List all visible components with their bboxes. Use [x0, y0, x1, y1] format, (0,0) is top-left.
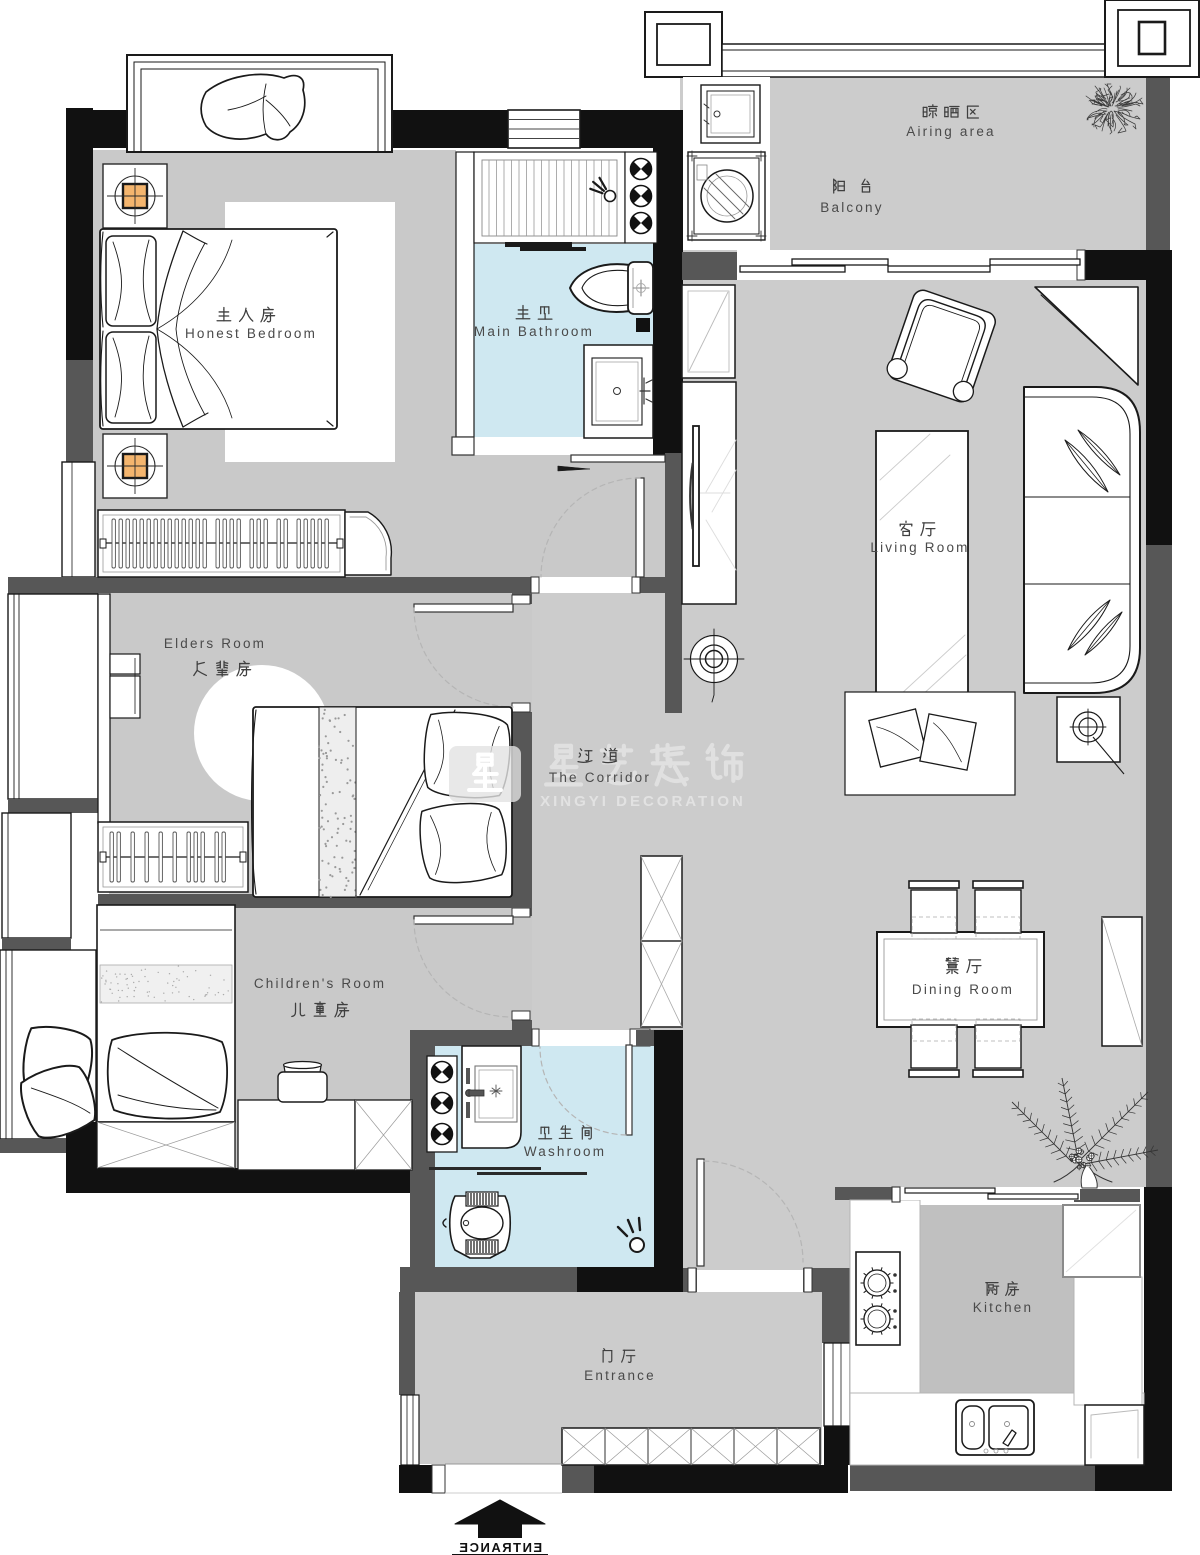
- svg-text:Living Room: Living Room: [870, 540, 969, 555]
- svg-text:Dining Room: Dining Room: [912, 982, 1014, 997]
- svg-text:Main Bathroom: Main Bathroom: [474, 324, 594, 339]
- svg-text:XINGYI DECORATION: XINGYI DECORATION: [540, 793, 746, 810]
- svg-text:Washroom: Washroom: [524, 1144, 606, 1159]
- svg-text:Honest Bedroom: Honest Bedroom: [185, 326, 317, 341]
- svg-text:Kitchen: Kitchen: [973, 1300, 1033, 1315]
- svg-text:ENTRANCE: ENTRANCE: [458, 1540, 542, 1555]
- svg-text:Airing area: Airing area: [906, 124, 996, 139]
- svg-text:Balcony: Balcony: [820, 200, 883, 215]
- svg-text:The Corridor: The Corridor: [549, 770, 651, 785]
- svg-text:Entrance: Entrance: [584, 1368, 656, 1383]
- svg-text:Elders Room: Elders Room: [164, 636, 266, 651]
- svg-text:Children's Room: Children's Room: [254, 976, 386, 991]
